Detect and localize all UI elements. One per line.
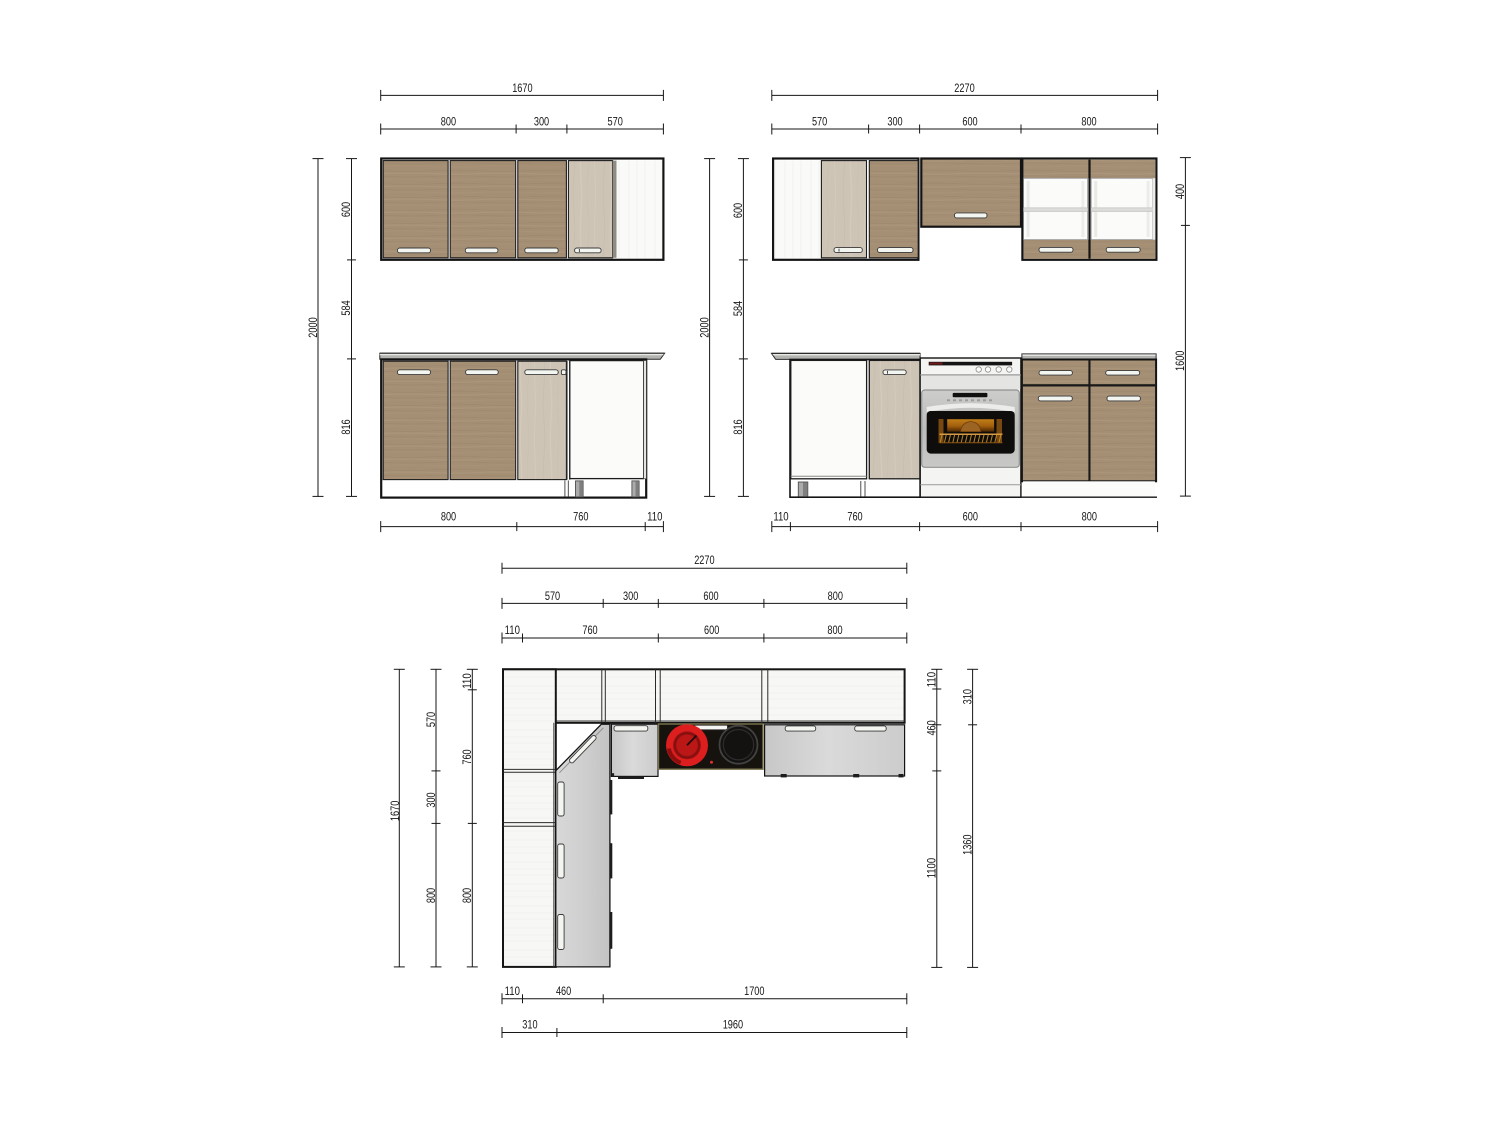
svg-text:570: 570 <box>426 712 438 727</box>
svg-text:584: 584 <box>733 300 745 316</box>
svg-text:760: 760 <box>582 625 597 637</box>
svg-text:800: 800 <box>828 591 843 603</box>
svg-text:460: 460 <box>556 986 571 998</box>
svg-text:570: 570 <box>812 117 827 129</box>
svg-text:816: 816 <box>341 419 353 434</box>
svg-text:600: 600 <box>341 202 353 217</box>
svg-text:600: 600 <box>704 625 719 637</box>
svg-text:110: 110 <box>926 672 938 687</box>
svg-text:300: 300 <box>534 117 549 129</box>
svg-text:2270: 2270 <box>954 83 974 95</box>
svg-text:600: 600 <box>733 203 745 218</box>
svg-text:2000: 2000 <box>700 317 712 337</box>
svg-text:460: 460 <box>926 720 938 735</box>
svg-text:300: 300 <box>887 117 902 129</box>
svg-text:300: 300 <box>426 792 438 807</box>
svg-text:760: 760 <box>573 512 588 524</box>
svg-text:600: 600 <box>703 591 718 603</box>
svg-text:1960: 1960 <box>723 1020 743 1032</box>
svg-text:310: 310 <box>962 689 974 704</box>
svg-text:570: 570 <box>545 591 560 603</box>
svg-text:110: 110 <box>505 625 520 637</box>
svg-text:1100: 1100 <box>926 858 938 878</box>
svg-text:300: 300 <box>623 591 638 603</box>
svg-text:2270: 2270 <box>694 555 714 567</box>
svg-text:400: 400 <box>1175 184 1187 199</box>
svg-text:110: 110 <box>647 512 662 524</box>
svg-text:760: 760 <box>462 749 474 764</box>
svg-text:110: 110 <box>773 512 788 524</box>
svg-text:110: 110 <box>505 986 520 998</box>
svg-text:1360: 1360 <box>962 835 974 855</box>
svg-text:816: 816 <box>733 419 745 434</box>
svg-text:570: 570 <box>608 117 623 129</box>
svg-text:800: 800 <box>441 117 456 129</box>
svg-text:584: 584 <box>341 300 353 316</box>
svg-text:1670: 1670 <box>512 83 532 95</box>
svg-text:1700: 1700 <box>744 986 764 998</box>
svg-text:2000: 2000 <box>308 317 320 337</box>
svg-text:800: 800 <box>1081 117 1096 129</box>
svg-text:800: 800 <box>426 888 438 903</box>
svg-text:110: 110 <box>462 673 474 688</box>
svg-text:310: 310 <box>522 1020 537 1032</box>
svg-text:1600: 1600 <box>1175 351 1187 371</box>
svg-text:600: 600 <box>962 117 977 129</box>
svg-text:1670: 1670 <box>390 801 402 821</box>
svg-text:800: 800 <box>441 512 456 524</box>
svg-text:760: 760 <box>847 512 862 524</box>
svg-text:800: 800 <box>1082 512 1097 524</box>
svg-text:800: 800 <box>462 888 474 903</box>
svg-text:600: 600 <box>963 512 978 524</box>
svg-text:800: 800 <box>827 625 842 637</box>
